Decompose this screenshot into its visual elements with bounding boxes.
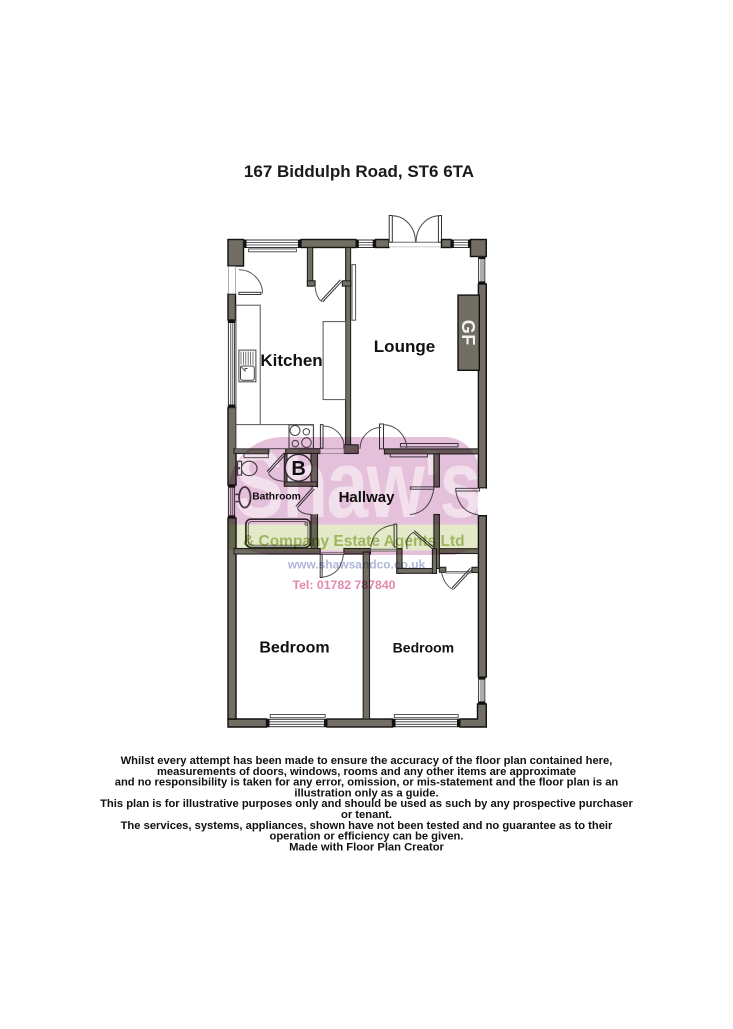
svg-text:Bedroom: Bedroom	[393, 640, 454, 656]
svg-text:Bathroom: Bathroom	[252, 491, 301, 502]
svg-text:Hallway: Hallway	[339, 489, 396, 506]
svg-text:Kitchen: Kitchen	[260, 351, 322, 370]
svg-text:Lounge: Lounge	[374, 337, 435, 356]
svg-text:GF: GF	[458, 320, 478, 346]
svg-text:167 Biddulph Road, ST6 6TA: 167 Biddulph Road, ST6 6TA	[244, 162, 474, 181]
svg-text:Made with Floor Plan Creator: Made with Floor Plan Creator	[289, 841, 444, 853]
svg-text:B: B	[291, 458, 305, 480]
svg-text:Bedroom: Bedroom	[259, 640, 329, 657]
svg-text:Tel: 01782 787840: Tel: 01782 787840	[292, 578, 395, 592]
